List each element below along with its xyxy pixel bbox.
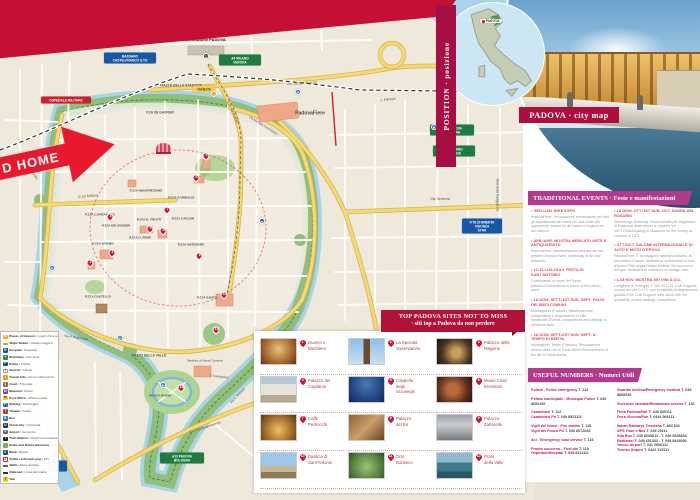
legend-item-label: Hospital / Ospedale	[9, 349, 37, 352]
phone-line: Fiera Vicenza/Fair T. 0444 969111	[617, 415, 699, 420]
legend-major-roads-icon	[3, 343, 8, 345]
site-name: Palazzo del Capitanio	[308, 378, 330, 389]
legend-item-label: Airport / Aeroporto	[9, 431, 35, 434]
site-pin: 9	[475, 415, 483, 423]
phone-number: T. 116	[685, 402, 695, 406]
site-info: 11Orto Botanico	[388, 452, 413, 465]
phone-number: T. 049 8211111	[564, 451, 589, 455]
event-item: 1-15 NOV. MOSTRA DEI VINI D.O.C.Luviglia…	[614, 278, 698, 303]
legend-item: ★Places of interest / Luoghi d'interesse	[3, 334, 57, 341]
legend-places-of-interest-icon: ★	[3, 335, 8, 340]
phone-group: Fiera Padova/Fair T. 049 840111Fiera Vic…	[617, 410, 699, 420]
site-name: Palazzo della Ragione	[484, 340, 510, 351]
event-description: Montegrotto Terme (Padova). Rievocazione…	[531, 343, 610, 357]
legend-item: PParking / Parcheggio	[3, 401, 57, 408]
site-card: 9Palazzo Zabarella	[436, 413, 522, 451]
site-pin: 1	[299, 339, 307, 347]
events-column-right: 1A DOM. OTT./1ST SUN. OCT. SAGRA DEL ROS…	[614, 209, 698, 307]
photo-statue	[637, 95, 643, 110]
event-title: 12-13 LUG./JULY. FESTA DI SANT'ANTONIO	[531, 268, 610, 278]
site-info: 1Duomo e Battistero	[300, 338, 326, 351]
phone-label: Radiotaxi	[617, 439, 635, 443]
legend-post-office-icon: ✉	[3, 396, 8, 401]
site-pin: 8	[387, 415, 395, 423]
site-thumbnail	[260, 414, 297, 441]
site-info: 7Caffè Pedrocchi	[300, 414, 327, 427]
legend-bus-icon: B	[3, 416, 8, 421]
site-name: Duomo e Battistero	[308, 340, 326, 351]
legend-parking-icon: P	[3, 403, 8, 408]
legend-item: BBus	[3, 415, 57, 422]
phone-number: T. 116	[584, 438, 594, 442]
site-thumbnail	[260, 376, 297, 403]
legend-bank-icon: €	[3, 450, 8, 455]
event-item: APR./APR. MOSTRA MERCATO ARTE E ANTIQUAR…	[531, 239, 610, 264]
site-thumbnail	[436, 338, 473, 365]
legend-item: TTaxi	[3, 476, 57, 483]
site-pin: 5	[387, 377, 395, 385]
phone-label: Vigili del fuoco - Fire station	[531, 424, 581, 428]
site-thumbnail	[260, 452, 297, 479]
event-description: PadovaFiere. Manifestazione annuale da n…	[531, 249, 610, 263]
legend-parks-and-nature-reserves-icon	[3, 443, 8, 448]
site-pin: 12	[475, 453, 483, 461]
numbers-column-left: Polizia - Police emergency T. 113Polizia…	[531, 388, 612, 460]
phone-group: Vigili del fuoco - Fire station T. 115Vi…	[531, 424, 612, 434]
phone-label: Polizia - Police emergency	[531, 388, 578, 392]
site-card: 2La Specola Osservatorio	[348, 337, 434, 375]
legend-item-label: Railroad / Linea ferroviaria	[10, 471, 47, 474]
phone-number: T. 041 2606111	[643, 443, 668, 447]
site-info: 2La Specola Osservatorio	[388, 338, 420, 351]
legend-item: HHospital / Ospedale	[3, 347, 57, 354]
site-name: Musei Civici Eremitani	[484, 378, 507, 389]
city-map-title-banner: PADOVA · city map	[519, 107, 619, 123]
site-pin-number: 1	[302, 341, 304, 344]
site-pin: 10	[299, 453, 307, 461]
inset-city-marker: PADOVA	[480, 19, 502, 23]
legend-traffic-restricted-zone-icon: ●	[3, 457, 8, 462]
phone-group: Carabinieri T. 112Carabinieri Pd T. 049 …	[531, 410, 612, 420]
legend-museum-icon: M	[3, 389, 8, 394]
legend-item-label: Taxi	[9, 478, 15, 481]
site-pin-number: 9	[478, 417, 480, 420]
event-title: 1A DOM. SETT./1ST SUN. SEPT. PALIO DEI D…	[531, 298, 610, 308]
site-name: Basilica di Sant'Antonio	[308, 454, 332, 465]
phone-label: Carabinieri Pd	[531, 415, 557, 419]
phone-number: T. 115	[581, 424, 591, 428]
site-thumbnail	[348, 452, 385, 479]
phone-label: Italian Railways Trenitalia	[617, 424, 663, 428]
phone-group: Aci - Emergency road service T. 116	[531, 438, 612, 443]
site-thumbnail	[436, 452, 473, 479]
site-pin-number: 3	[478, 341, 480, 344]
site-thumbnail	[348, 338, 385, 365]
site-card: 6Musei Civici Eremitani	[436, 375, 522, 413]
legend-walls-icon	[3, 465, 8, 467]
marker-dot-icon	[482, 20, 485, 23]
site-name: Prato della Valle	[484, 454, 504, 465]
event-description: PadovaFiere. È la maggiore rassegna ital…	[614, 254, 698, 273]
top-sites-grid: 1Duomo e Battistero2La Specola Osservato…	[260, 337, 522, 489]
position-ribbon: POSITION · posizione	[436, 5, 456, 167]
phone-label: Pronto soccorso - First aid	[531, 447, 579, 451]
phone-line: Treviso Airport T. 0422 315111	[617, 448, 699, 453]
legend-item-label: Church / Chiesa	[9, 369, 32, 372]
legend-item: +Pharmacy / Farmacia	[3, 354, 57, 361]
phone-label: Vigili del Fuoco Pd	[531, 429, 565, 433]
site-pin: 7	[299, 415, 307, 423]
site-pin: 3	[475, 339, 483, 347]
site-info: 12Prato della Valle	[476, 452, 504, 465]
legend-item-label: Police / Polizia	[9, 363, 30, 366]
site-info: 5Cappella degli Scrovegni	[388, 376, 415, 395]
legend-item: MMuseum / Musei	[3, 388, 57, 395]
site-info: 6Musei Civici Eremitani	[476, 376, 507, 389]
phone-group: Guardia medica/Emergency medical T. 049 …	[617, 388, 699, 398]
phone-label: Fiera Padova/Fair	[617, 410, 649, 414]
phone-number: T. 118	[579, 447, 589, 451]
phone-number: T. 113	[578, 388, 588, 392]
site-thumbnail	[436, 414, 473, 441]
event-description: Montagnana (Padova). Manifestazione, com…	[531, 309, 610, 328]
phone-label: Fiera Vicenza/Fair	[617, 415, 649, 419]
legend-pharmacy-icon: +	[3, 355, 8, 360]
site-pin-number: 7	[302, 417, 304, 420]
site-pin: 6	[475, 377, 483, 385]
site-card: 1Duomo e Battistero	[260, 337, 346, 375]
legend-item-label: Museum / Musei	[9, 390, 32, 393]
legend-taxi-icon: T	[3, 477, 8, 482]
event-description: PadovaFiere. Un'occasione immancabile pe…	[531, 215, 610, 234]
site-pin-number: 5	[390, 379, 392, 382]
site-pin: 4	[299, 377, 307, 385]
site-card: 3Palazzo della Ragione	[436, 337, 522, 375]
legend-item-label: Bus	[9, 417, 15, 420]
legend-hospital-icon: H	[3, 348, 8, 353]
site-thumbnail	[348, 414, 385, 441]
legend-item: ●Traffic restricted zone / ZTL	[3, 456, 57, 463]
event-description: Luvigliano di Torreglia, T. 049 521133. …	[614, 284, 698, 303]
legend-item: TTrain Station / Stazione ferroviaria	[3, 435, 57, 442]
site-card: 10Basilica di Sant'Antonio	[260, 451, 346, 489]
site-pin-number: 12	[477, 455, 481, 458]
event-title: 1A DOM. OTT./1ST SUN. OCT. SAGRA DEL ROS…	[614, 209, 698, 219]
event-description: Saccolongo (Padova). Festa istituita per…	[614, 220, 698, 239]
site-pin-number: 6	[478, 379, 480, 382]
site-pin: 11	[387, 453, 395, 461]
legend-item: Major Roads / Strade maggiori	[3, 340, 57, 347]
phone-label: APS Tram e Bus	[617, 429, 647, 433]
site-info: 9Palazzo Zabarella	[476, 414, 502, 427]
event-item: GEN./JAN. BIKE EXPOPadovaFiere. Un'occas…	[531, 209, 610, 234]
site-name: Cappella degli Scrovegni	[396, 378, 415, 395]
legend-item-label: Theater / Teatro	[9, 410, 31, 413]
phone-number: T. 049 8521111	[557, 415, 582, 419]
site-name: Palazzo Zabarella	[484, 416, 502, 427]
phone-label: Soccorso stradale/Breakdown service	[617, 402, 685, 406]
legend-item: UUniversity / Università	[3, 422, 57, 429]
home-dome-icon	[156, 143, 171, 154]
phone-number: T. 0444 969111	[649, 415, 674, 419]
legend-item-label: Traffic restricted zone / ZTL	[9, 458, 49, 461]
legend-item-label: Parks and Nature Reserves	[9, 444, 49, 447]
site-card: 5Cappella degli Scrovegni	[348, 375, 434, 413]
phone-label: Aci - Emergency road service	[531, 438, 584, 442]
site-pin: 2	[387, 339, 395, 347]
phone-group: Italian Railways Trenitalia T. 892 021AP…	[617, 424, 699, 453]
site-info: 8Palazzo del Bò	[388, 414, 411, 427]
legend-item-label: Parking / Parcheggio	[9, 403, 39, 406]
numbers-column-right: Guardia medica/Emergency medical T. 049 …	[617, 388, 699, 457]
numbers-header: USEFUL NUMBERS · Numeri Utili	[533, 372, 634, 379]
site-thumbnail	[260, 338, 297, 365]
site-info: 10Basilica di Sant'Antonio	[300, 452, 332, 465]
legend-item-label: Walls / Mura storiche	[10, 464, 39, 467]
site-pin-number: 4	[302, 379, 304, 382]
top-sites-title-it: · siti top a Padova da non perdere	[411, 321, 494, 328]
prato-della-valle	[144, 370, 200, 414]
map-legend: ★Places of interest / Luoghi d'interesse…	[0, 331, 59, 484]
phone-line: Ospedale/Hospital T. 049 8211111	[531, 451, 612, 456]
legend-item: €Bank / Banca	[3, 449, 57, 456]
legend-item-label: Places of interest / Luoghi d'interesse	[9, 335, 59, 338]
phone-line: Vigili del Fuoco Pd T. 049 8072045	[531, 429, 612, 434]
phone-label: Treviso Airport	[617, 448, 644, 452]
event-title: GEN./JAN. BIKE EXPO	[531, 209, 610, 214]
legend-university-icon: U	[3, 423, 8, 428]
site-pin-number: 2	[390, 341, 392, 344]
phone-line: Guardia medica/Emergency medical T. 049 …	[617, 388, 699, 398]
legend-court-icon: §	[3, 382, 8, 387]
phone-line: Polizia - Police emergency T. 113	[531, 388, 612, 393]
phone-group: Pronto soccorso - First aid T. 118Ospeda…	[531, 447, 612, 457]
site-pin-number: 11	[389, 455, 393, 458]
events-header-ribbon: TRADITIONAL EVENTS · Feste e manifestazi…	[528, 191, 688, 205]
phone-label: Sita Bus	[617, 434, 633, 438]
event-description: Celebrazioni in onore del Santo patrono.…	[531, 279, 610, 293]
phone-group: Polizia - Police emergency T. 113	[531, 388, 612, 393]
phone-number: T. 049 8072045	[565, 429, 590, 433]
numbers-header-ribbon: USEFUL NUMBERS · Numeri Utili	[528, 368, 638, 382]
phone-label: Guardia medica/Emergency medical	[617, 388, 681, 392]
phone-number: T. 049 8206811 - T. 049 8206834	[633, 434, 687, 438]
phone-number: T. 112	[551, 410, 561, 414]
position-ribbon-label: POSITION · posizione	[442, 42, 451, 131]
site-card: 12Prato della Valle	[436, 451, 522, 489]
photo-statue	[567, 92, 573, 107]
site-card: 8Palazzo del Bò	[348, 413, 434, 451]
phone-line: Soccorso stradale/Breakdown service T. 1…	[617, 402, 699, 407]
phone-label: Carabinieri	[531, 410, 551, 414]
inset-marker-label: PADOVA	[486, 20, 500, 23]
phone-number: T. 049 651333 - T. 049 8443000	[635, 439, 687, 443]
legend-item: ✈Airport / Aeroporto	[3, 429, 57, 436]
site-card: 7Caffè Pedrocchi	[260, 413, 346, 451]
phone-number: T. 049 20111	[647, 429, 668, 433]
event-item: 2A DOM. SETT./2ST SUN. SEPT. IL TEMPO DI…	[531, 333, 610, 358]
legend-tourist-info-icon: i	[3, 375, 8, 380]
site-card: 11Orto Botanico	[348, 451, 434, 489]
site-pin-number: 8	[390, 417, 392, 420]
event-title: 1-15 NOV. MOSTRA DEI VINI D.O.C.	[614, 278, 698, 283]
legend-item: Railroad / Linea ferroviaria	[3, 469, 57, 476]
site-info: 4Palazzo del Capitanio	[300, 376, 330, 389]
site-info: 3Palazzo della Ragione	[476, 338, 510, 351]
legend-police-icon: P	[3, 362, 8, 367]
legend-airport-icon: ✈	[3, 430, 8, 435]
phone-label: Polizia municipale - Municipal Police	[531, 397, 596, 401]
phone-number: T. 0422 315111	[644, 448, 669, 452]
legend-item: Parks and Nature Reserves	[3, 442, 57, 449]
site-name: Caffè Pedrocchi	[308, 416, 327, 427]
legend-item: TTheater / Teatro	[3, 408, 57, 415]
padova-city-map-page: Train Station/Stazione PADOVAPIAZZA DELL…	[0, 0, 700, 500]
event-title: APR./APR. MOSTRA MERCATO ARTE E ANTIQUAR…	[531, 239, 610, 249]
events-header: TRADITIONAL EVENTS · Feste e manifestazi…	[533, 195, 675, 202]
phone-line: Aci - Emergency road service T. 116	[531, 438, 612, 443]
legend-item-label: University / Università	[9, 424, 40, 427]
site-pin-number: 10	[301, 455, 305, 458]
phone-number: T. 892 021	[663, 424, 680, 428]
legend-item-label: Court / Tribunale	[9, 383, 33, 386]
legend-item: PPolice / Polizia	[3, 361, 57, 368]
phone-group: Polizia municipale - Municipal Police T.…	[531, 397, 612, 407]
legend-train-station-icon: T	[3, 437, 8, 442]
event-title: OTT./OCT. SALONE INTERNAZIONALE DI AUTO …	[614, 243, 698, 253]
phone-line: Polizia municipale - Municipal Police T.…	[531, 397, 612, 407]
site-name: Palazzo del Bò	[396, 416, 411, 427]
site-name: Orto Botanico	[396, 454, 413, 465]
legend-item: ✉Post Office / Ufficio postale	[3, 395, 57, 402]
site-card: 4Palazzo del Capitanio	[260, 375, 346, 413]
legend-theater-icon: T	[3, 409, 8, 414]
phone-line: Carabinieri Pd T. 049 8521111	[531, 415, 612, 420]
legend-item-label: Pharmacy / Farmacia	[9, 356, 39, 359]
legend-railroad-icon	[3, 472, 8, 474]
event-item: OTT./OCT. SALONE INTERNAZIONALE DI AUTO …	[614, 243, 698, 272]
legend-item-label: Bank / Banca	[9, 451, 28, 454]
event-item: 1A DOM. SETT./1ST SUN. SEPT. PALIO DEI D…	[531, 298, 610, 327]
top-sites-banner: TOP PADOVA SITES NOT TO MISS · siti top …	[381, 310, 525, 332]
legend-item-label: Tourist Info / Punto informazioni	[9, 376, 54, 379]
event-item: 1A DOM. OTT./1ST SUN. OCT. SAGRA DEL ROS…	[614, 209, 698, 238]
italy-inset-map	[441, 2, 545, 106]
phone-number: T. 049 840111	[649, 410, 672, 414]
phone-label: Ospedale/Hospital	[531, 451, 564, 455]
event-title: 2A DOM. SETT./2ST SUN. SEPT. IL TEMPO DI…	[531, 333, 610, 343]
city-map-title: PADOVA · city map	[529, 110, 608, 120]
top-sites-title-en: TOP PADOVA SITES NOT TO MISS	[399, 313, 507, 321]
site-thumbnail	[348, 376, 385, 403]
legend-item: §Court / Tribunale	[3, 381, 57, 388]
events-column-left: GEN./JAN. BIKE EXPOPadovaFiere. Un'occas…	[531, 209, 610, 362]
site-thumbnail	[436, 376, 473, 403]
site-name: La Specola Osservatorio	[396, 340, 420, 351]
legend-item-label: Major Roads / Strade maggiori	[10, 342, 53, 345]
legend-item-label: Post Office / Ufficio postale	[9, 397, 47, 400]
legend-church-icon: †	[3, 369, 8, 374]
legend-item: iTourist Info / Punto informazioni	[3, 374, 57, 381]
phone-label: Venice Airport	[617, 443, 643, 447]
legend-item: Walls / Mura storiche	[3, 463, 57, 470]
phone-group: Soccorso stradale/Breakdown service T. 1…	[617, 402, 699, 407]
legend-item-label: Train Station / Stazione ferroviaria	[9, 437, 57, 440]
event-item: 12-13 LUG./JULY. FESTA DI SANT'ANTONIOCe…	[531, 268, 610, 293]
legend-item: †Church / Chiesa	[3, 367, 57, 374]
